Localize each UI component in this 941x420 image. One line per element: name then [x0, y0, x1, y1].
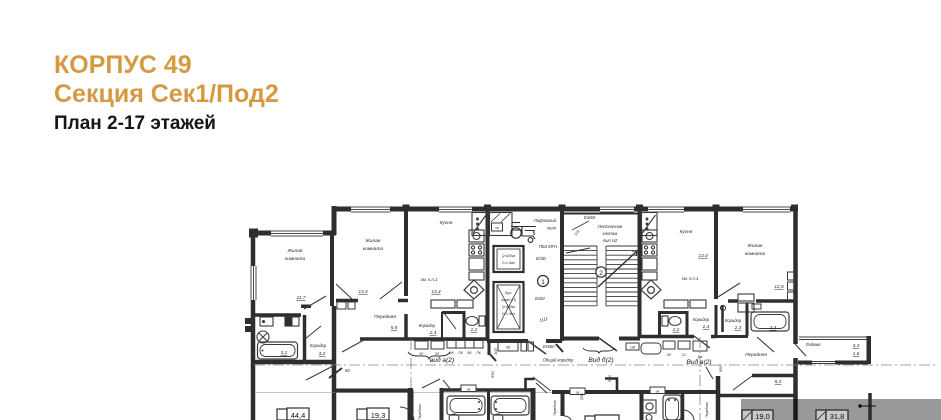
svg-text:2,2: 2,2	[470, 327, 478, 333]
svg-text:Кухня: Кухня	[440, 220, 453, 226]
svg-text:Передняя: Передняя	[418, 404, 422, 419]
svg-text:ов: ов	[467, 388, 471, 392]
svg-text:Коридор: Коридор	[310, 343, 327, 348]
svg-text:Ei30: Ei30	[536, 256, 546, 262]
svg-text:550: 550	[490, 371, 495, 378]
svg-text:300: 300	[493, 348, 498, 355]
svg-text:ПБ3 МГН: ПБ3 МГН	[539, 244, 558, 249]
svg-text:Передняя: Передняя	[374, 314, 396, 320]
svg-text:ОВ: ОВ	[630, 346, 636, 350]
svg-text:3,2: 3,2	[281, 350, 288, 356]
svg-text:50: 50	[345, 368, 350, 373]
svg-text:Лестничная: Лестничная	[597, 224, 623, 229]
svg-text:Q=930кг: Q=930кг	[502, 305, 516, 309]
svg-text:13,4: 13,4	[698, 253, 708, 259]
svg-text:2,3: 2,3	[734, 325, 742, 331]
svg-text:комната: комната	[363, 247, 383, 252]
svg-text:План 2-17 этажей: План 2-17 этажей	[54, 113, 216, 134]
svg-text:Вид б(2): Вид б(2)	[588, 356, 613, 364]
svg-text:8,3: 8,3	[775, 379, 782, 385]
svg-text:Общий коридор: Общий коридор	[543, 358, 575, 363]
svg-text:Груз.: Груз.	[505, 291, 513, 295]
svg-text:200: 200	[579, 393, 584, 401]
svg-text:КОРПУС 49: КОРПУС 49	[54, 51, 192, 79]
svg-text:Ei60: Ei60	[535, 296, 545, 302]
svg-text:лифт (П): лифт (П)	[500, 298, 516, 302]
svg-text:вид а(2): вид а(2)	[430, 356, 454, 364]
svg-text:ЭЛ: ЭЛ	[667, 353, 672, 357]
svg-text:1,6: 1,6	[853, 351, 860, 357]
svg-text:тип Н2: тип Н2	[603, 238, 618, 243]
svg-text:3,4: 3,4	[770, 325, 777, 331]
svg-text:Жилая: Жилая	[746, 243, 762, 249]
svg-text:комната: комната	[285, 257, 305, 262]
svg-text:СС: СС	[682, 353, 687, 357]
svg-text:ОВ: ОВ	[506, 346, 512, 350]
svg-text:комната: комната	[745, 252, 765, 257]
svg-text:2,4: 2,4	[429, 330, 437, 336]
svg-text:Кухня: Кухня	[680, 229, 693, 235]
svg-text:19,3: 19,3	[371, 411, 386, 420]
svg-text:1: 1	[541, 279, 545, 286]
svg-text:см. п.п.1: см. п.п.1	[421, 277, 438, 282]
svg-text:Передняя: Передняя	[553, 400, 557, 415]
svg-text:44,4: 44,4	[291, 411, 306, 420]
svg-text:ЗЛ: ЗЛ	[419, 352, 424, 356]
svg-text:Передняя: Передняя	[745, 352, 767, 358]
svg-text:V=1,0м/с: V=1,0м/с	[502, 261, 516, 265]
svg-text:Лифтовый: Лифтовый	[533, 218, 557, 223]
svg-text:13,4: 13,4	[358, 289, 368, 295]
svg-text:ов: ов	[495, 226, 499, 230]
svg-text:холл: холл	[546, 226, 557, 231]
svg-text:2,4: 2,4	[702, 324, 710, 330]
svg-text:EiS60: EiS60	[584, 215, 596, 220]
svg-text:12,5: 12,5	[774, 284, 784, 290]
svg-text:11,7: 11,7	[297, 295, 306, 301]
svg-text:Секция Сек1/Под2: Секция Сек1/Под2	[54, 80, 279, 108]
svg-text:Жилая: Жилая	[286, 248, 302, 254]
svg-text:19,0: 19,0	[755, 412, 770, 420]
svg-text:Жилая: Жилая	[364, 238, 380, 244]
svg-text:EIS60: EIS60	[543, 344, 555, 349]
svg-text:Q=630кг: Q=630кг	[502, 254, 516, 258]
svg-text:2: 2	[599, 270, 603, 277]
svg-text:V=1,0м/с: V=1,0м/с	[502, 312, 516, 316]
svg-text:5,5: 5,5	[391, 325, 398, 331]
svg-text:Передняя: Передняя	[705, 402, 709, 417]
svg-text:Коридор: Коридор	[419, 323, 436, 328]
svg-text:13,4: 13,4	[431, 289, 441, 295]
svg-text:550: 550	[718, 365, 723, 372]
svg-text:ов: ов	[656, 390, 660, 394]
svg-text:2,2: 2,2	[672, 327, 680, 333]
svg-text:ЗЛ: ЗЛ	[435, 352, 440, 356]
svg-text:Лоджия: Лоджия	[805, 342, 822, 347]
svg-text:3,3: 3,3	[853, 343, 860, 349]
svg-text:Коридор: Коридор	[693, 317, 710, 322]
svg-text:31,8: 31,8	[830, 412, 845, 420]
svg-text:см. п.п.1: см. п.п.1	[682, 276, 699, 281]
svg-text:Коридор: Коридор	[725, 318, 742, 323]
svg-text:3,2: 3,2	[319, 351, 326, 357]
svg-text:клетка: клетка	[603, 231, 618, 236]
